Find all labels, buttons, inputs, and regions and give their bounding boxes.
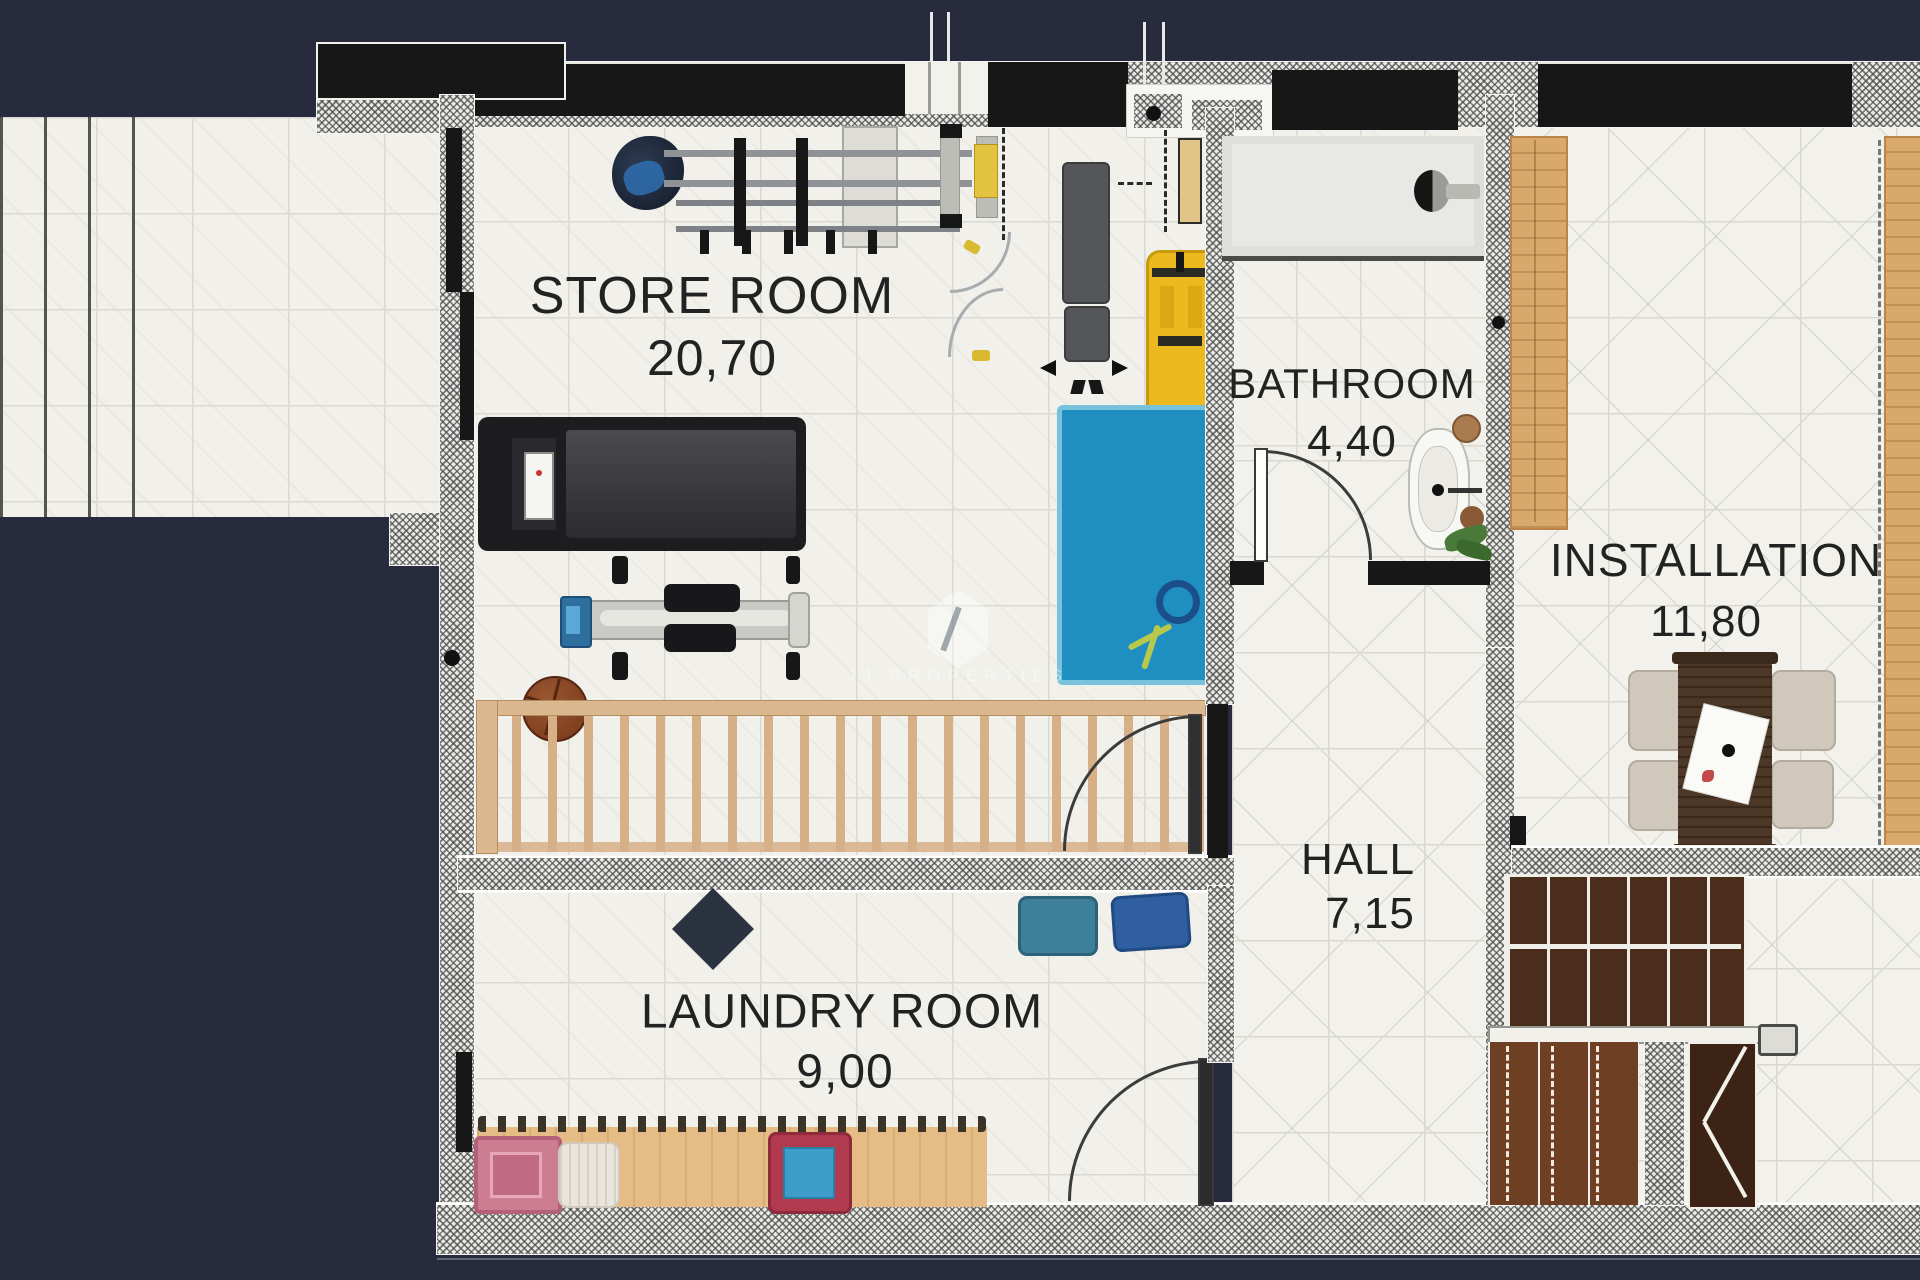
pink-box-inner	[490, 1152, 542, 1198]
store-room-area: 20,70	[647, 329, 777, 387]
wardrobe-left	[1510, 136, 1568, 530]
dumbbell	[868, 230, 877, 254]
machine-pad	[664, 584, 740, 612]
stair-top-rail	[476, 700, 1206, 716]
barbell-bar-3	[676, 200, 960, 206]
laundry-door-leaf	[1198, 1058, 1214, 1206]
stair-post	[476, 700, 498, 854]
towel-blue	[1110, 891, 1192, 952]
stair-divider-wall	[1645, 1042, 1684, 1205]
bathroom-bottom-wall-left	[1230, 561, 1264, 585]
vent-lines	[930, 12, 950, 62]
cart-detail	[1160, 286, 1174, 328]
cart-detail	[1188, 286, 1202, 328]
bath-accessory-bar	[1448, 488, 1482, 493]
bath-accessory-dot	[1432, 484, 1444, 496]
machine-handle	[612, 556, 628, 584]
staircase-landing-line	[1504, 944, 1741, 949]
left-wing-stair-treads	[0, 117, 172, 517]
vent-lines	[1143, 22, 1165, 84]
weight-bench-pad-1	[1062, 162, 1110, 304]
staircase-upper-flight	[1504, 874, 1747, 1030]
cart-handle	[1176, 252, 1184, 272]
barbell-bar-1	[664, 150, 972, 157]
staircase-rail-hook	[1758, 1024, 1798, 1056]
top-wall-black-2	[988, 62, 1128, 127]
machine-handle	[612, 652, 628, 680]
laundry-right-wall	[1208, 886, 1234, 1062]
treadmill-screen	[524, 452, 554, 520]
machine-console-screen	[566, 606, 580, 634]
dumbbell	[826, 230, 835, 254]
laundry-room-area: 9,00	[796, 1045, 893, 1100]
top-wall-black-3	[1272, 70, 1458, 130]
bench-pad-yellow	[974, 144, 998, 198]
dumbbell	[742, 230, 751, 254]
bench-arrow-left	[1040, 360, 1056, 376]
laundry-basket-inner	[783, 1147, 835, 1199]
dimension-line	[1002, 128, 1005, 240]
installation-area: 11,80	[1650, 597, 1762, 647]
shower-head	[1414, 170, 1450, 212]
bench-small	[1178, 138, 1202, 224]
mat-ring	[1156, 580, 1200, 624]
top-left-wall-bar	[316, 42, 566, 100]
stair-door-leaf	[1188, 714, 1202, 854]
staircase-lower-right	[1688, 1042, 1757, 1209]
shower-arm	[1446, 184, 1480, 199]
staircase-lower-left	[1488, 1042, 1639, 1205]
paper-flower	[1702, 770, 1714, 782]
stairwell-wall-stub	[1510, 816, 1526, 850]
machine-endcap	[788, 592, 810, 648]
barbell-bar-2	[664, 180, 972, 187]
chair	[1771, 670, 1836, 751]
hall-left-wall-black	[1208, 704, 1228, 858]
jump-rope-handle	[972, 350, 990, 361]
watermark-text: JJ PROPERTIES	[847, 666, 1069, 686]
dumbbell	[700, 230, 709, 254]
left-wall-black-3	[456, 1052, 472, 1152]
towel-teal	[1018, 896, 1098, 956]
treadmill-belt	[566, 430, 796, 538]
left-wall-black-2	[460, 292, 474, 440]
laundry-top-wall	[458, 856, 1234, 892]
bench-cap	[940, 124, 962, 138]
installation-label: INSTALLATION	[1550, 533, 1882, 587]
wardrobe-right	[1884, 136, 1920, 852]
top-wall-black-4	[1538, 62, 1852, 127]
bench-cap	[940, 214, 962, 228]
stair-tread-dashes	[1506, 1046, 1509, 1201]
wardrobe-divider	[1534, 140, 1536, 522]
machine-pad	[664, 624, 736, 652]
bathroom-bottom-wall-right	[1368, 561, 1490, 585]
laundry-room-label: LAUNDRY ROOM	[641, 985, 1043, 1040]
rack-post	[796, 138, 808, 246]
stair-tread-dashes	[1551, 1046, 1554, 1201]
wall-dot	[1492, 316, 1505, 329]
counter-hooks	[478, 1116, 986, 1132]
bench-rail	[940, 136, 960, 218]
stair-tread-dashes	[1596, 1046, 1599, 1201]
treadmill-led	[536, 470, 542, 476]
chair	[1771, 760, 1834, 829]
top-wall-window	[905, 62, 988, 114]
machine-handle	[786, 556, 800, 584]
stair-arrow-up	[1702, 1046, 1747, 1123]
store-room-label: STORE ROOM	[530, 266, 894, 326]
floor-plan: STORE ROOM 20,70 LAUNDRY ROOM 9,00 BATHR…	[0, 0, 1920, 1280]
dimension-dash	[1118, 182, 1152, 185]
toilet-paper	[1452, 414, 1481, 443]
weight-bench-pad-2	[1064, 306, 1110, 362]
hall-label: HALL	[1301, 835, 1415, 885]
bathroom-label: BATHROOM	[1228, 360, 1476, 408]
window-line	[958, 62, 961, 114]
dumbbell	[784, 230, 793, 254]
machine-handle	[786, 652, 800, 680]
bathroom-area: 4,40	[1307, 417, 1397, 467]
barbell-bar-4	[676, 226, 960, 232]
pouf	[558, 1142, 620, 1208]
left-wall-dot	[444, 650, 460, 666]
table-end	[1672, 652, 1778, 664]
paper-dot	[1722, 744, 1735, 757]
bottom-wall	[437, 1203, 1920, 1254]
dimension-line	[1164, 130, 1167, 232]
bottom-plan-line	[437, 1258, 1920, 1260]
window-line	[928, 62, 931, 114]
dimension-line	[1878, 140, 1881, 845]
bench-arrow-right	[1112, 360, 1128, 376]
hall-area: 7,15	[1325, 889, 1415, 939]
cart-stripe	[1158, 336, 1202, 346]
left-wall-black-1	[446, 128, 462, 292]
stair-arrow-down	[1702, 1121, 1747, 1198]
bathroom-door-leaf	[1254, 448, 1268, 562]
chimney-dot	[1146, 106, 1161, 121]
